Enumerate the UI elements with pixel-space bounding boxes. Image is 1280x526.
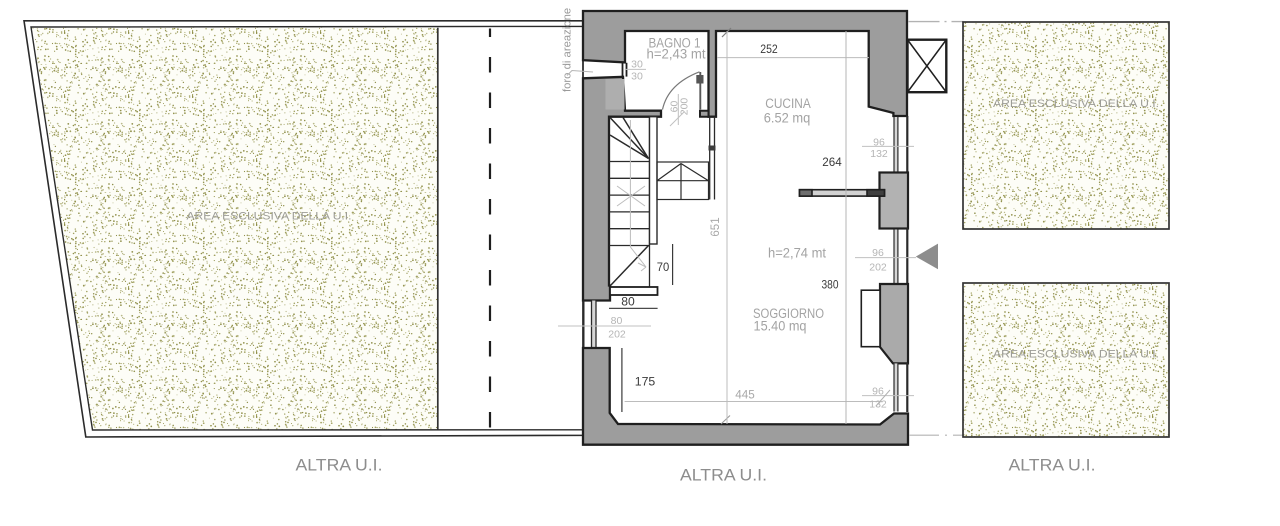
svg-text:200: 200 (678, 98, 690, 116)
svg-text:ALTRA U.I.: ALTRA U.I. (680, 467, 767, 485)
svg-text:h=2,43 mt: h=2,43 mt (647, 46, 706, 61)
svg-text:6.52 mq: 6.52 mq (764, 111, 811, 126)
svg-text:ALTRA U.I.: ALTRA U.I. (1009, 457, 1096, 475)
svg-text:202: 202 (869, 262, 887, 274)
svg-text:AREA ESCLUSIVA DELLA U.I.: AREA ESCLUSIVA DELLA U.I. (187, 211, 352, 223)
svg-text:ALTRA U.I.: ALTRA U.I. (296, 457, 383, 475)
svg-text:445: 445 (735, 388, 755, 402)
svg-text:80: 80 (611, 315, 623, 327)
svg-text:foro di areazione: foro di areazione (562, 8, 574, 92)
svg-text:AREA ESCLUSIVA DELLA U.I.: AREA ESCLUSIVA DELLA U.I. (993, 349, 1159, 361)
svg-text:70: 70 (657, 260, 670, 274)
svg-text:AREA ESCLUSIVA DELLA U.I.: AREA ESCLUSIVA DELLA U.I. (993, 98, 1159, 110)
svg-text:175: 175 (635, 375, 656, 389)
svg-text:252: 252 (760, 42, 778, 56)
svg-text:202: 202 (608, 329, 626, 341)
svg-text:132: 132 (869, 399, 887, 411)
svg-text:264: 264 (822, 155, 842, 169)
svg-text:CUCINA: CUCINA (765, 96, 811, 111)
svg-text:h=2,74 mt: h=2,74 mt (768, 245, 826, 260)
svg-text:30: 30 (631, 59, 643, 71)
svg-text:380: 380 (822, 278, 839, 292)
svg-text:132: 132 (870, 148, 888, 160)
svg-text:80: 80 (621, 295, 635, 309)
svg-text:651: 651 (710, 217, 722, 236)
svg-text:15.40 mq: 15.40 mq (754, 319, 807, 334)
svg-text:30: 30 (631, 71, 643, 83)
